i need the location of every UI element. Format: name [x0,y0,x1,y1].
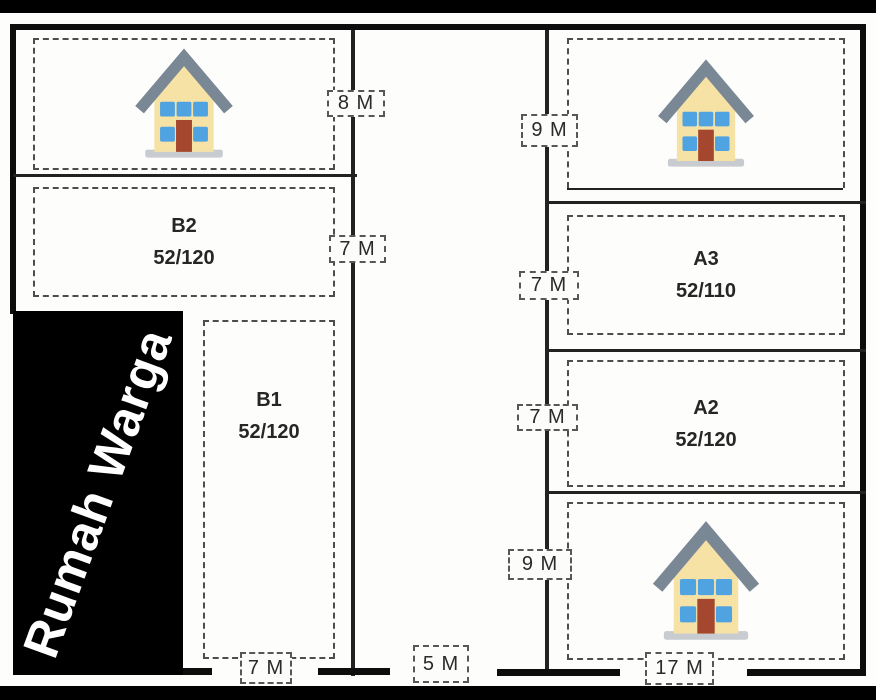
dim-bottom-right: 17 M [645,652,714,685]
community-area: Rumah Warga [13,311,183,675]
letterbox-top [0,0,876,13]
wall-top [10,24,866,30]
road-line-left [351,30,355,676]
house-icon [644,515,768,648]
lot-b2-name: B2 [171,210,197,242]
lot-house-top-right [567,38,845,188]
dim-left-mid: 7 M [329,235,386,263]
divider-right-1 [547,201,866,204]
site-plan-image: Rumah Warga B2 52/120 B1 52/120 A3 52/11… [0,0,876,700]
lot-a3-area: 52/110 [676,275,736,307]
divider-right-2 [547,349,866,352]
lot-b2: B2 52/120 [33,187,335,297]
letterbox-bottom [0,686,876,700]
wall-bottom-segment-1 [180,668,212,675]
house-icon [650,54,762,174]
lot-b1-area: 52/120 [238,416,299,448]
lot-b2-area: 52/120 [153,242,214,274]
lot-a2-area: 52/120 [675,424,736,456]
divider-right-3 [547,491,866,494]
community-area-label: Rumah Warga [13,321,183,665]
house-lot-baseline [567,188,843,190]
lot-house-bottom-right [567,502,845,660]
wall-bottom-segment-4 [747,669,866,676]
wall-bottom-segment-3 [497,669,620,676]
dim-right-a2: 7 M [517,404,578,431]
lot-house-top-left [33,38,335,170]
house-icon [127,45,241,163]
lot-a2-name: A2 [693,392,719,424]
lot-b1: B1 52/120 [203,320,335,659]
dim-bottom-left: 7 M [240,652,292,684]
lot-a2: A2 52/120 [567,360,845,487]
lot-b1-name: B1 [256,384,282,416]
dim-left-top: 8 M [327,90,385,117]
wall-bottom-segment-2 [318,668,390,675]
dim-right-bottom: 9 M [508,549,572,580]
lot-a3-name: A3 [693,243,719,275]
divider-left-block [13,174,357,177]
wall-left [10,24,16,314]
dim-right-top: 9 M [521,114,578,147]
lot-a3: A3 52/110 [567,215,845,335]
dim-right-a3: 7 M [519,271,579,300]
dim-bottom-mid: 5 M [413,645,469,683]
